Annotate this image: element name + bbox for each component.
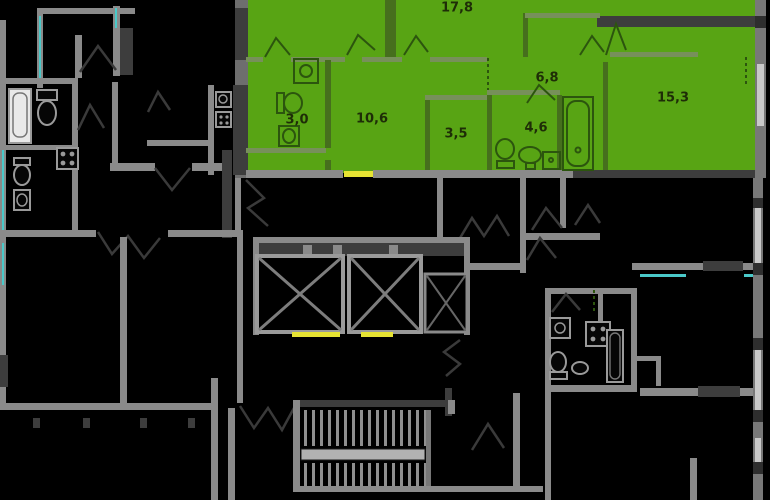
door-swing-icon — [155, 168, 190, 190]
toilet-icon — [37, 90, 57, 100]
window-marker — [2, 243, 4, 285]
stove-icon — [216, 112, 231, 127]
stove-icon — [57, 148, 78, 169]
room-area-label: 6,8 — [535, 71, 558, 86]
window-marker — [115, 8, 117, 28]
window-marker — [755, 350, 761, 410]
window-marker — [39, 16, 41, 80]
door-swing-icon — [246, 180, 268, 226]
door-swing-icon — [575, 205, 600, 225]
door-swing-icon — [98, 232, 160, 258]
door-swing-icon — [240, 406, 294, 430]
sink-icon — [572, 362, 588, 374]
window-marker — [757, 64, 764, 126]
door-swing-icon — [532, 208, 562, 230]
room-area-label: 17,8 — [441, 1, 473, 16]
washing-machine-icon — [550, 318, 570, 338]
door-sill-marker — [292, 332, 340, 337]
floor-plan-stage: 17,8 6,8 15,3 3,0 10,6 3,5 4,6 — [0, 0, 770, 500]
door-swing-icon — [527, 238, 556, 260]
door-sill-marker — [361, 332, 393, 337]
door-swing-icon — [78, 105, 104, 130]
door-sill-marker — [344, 171, 373, 177]
elevator-core — [253, 237, 470, 337]
washing-machine-icon — [216, 92, 231, 107]
window-marker — [2, 145, 4, 230]
window-marker — [755, 208, 761, 263]
room-area-label: 15,3 — [657, 91, 689, 106]
door-swing-icon — [148, 92, 170, 112]
window-marker — [744, 274, 753, 277]
door-swing-icon — [472, 424, 504, 450]
door-swing-icon — [552, 294, 580, 312]
room-area-label: 3,5 — [444, 127, 467, 142]
toilet-icon — [550, 352, 566, 372]
window-marker — [640, 274, 686, 277]
room-area-label: 10,6 — [356, 112, 388, 127]
room-area-label: 3,0 — [285, 113, 308, 128]
staircase — [293, 393, 543, 492]
floor-plan-svg — [0, 0, 770, 500]
bottom-right-apartment — [545, 178, 763, 500]
room-area-label: 4,6 — [524, 121, 547, 136]
door-swing-icon — [460, 216, 509, 238]
door-swing-icon — [80, 46, 116, 72]
door-swing-icon — [444, 340, 460, 376]
toilet-icon — [14, 158, 30, 165]
highlighted-apartment[interactable] — [233, 0, 766, 178]
left-apartment-walls — [0, 6, 232, 238]
staircase-icon — [300, 463, 426, 486]
bottom-left-apartment — [0, 230, 243, 428]
window-marker — [755, 438, 761, 462]
staircase-icon — [300, 410, 426, 446]
